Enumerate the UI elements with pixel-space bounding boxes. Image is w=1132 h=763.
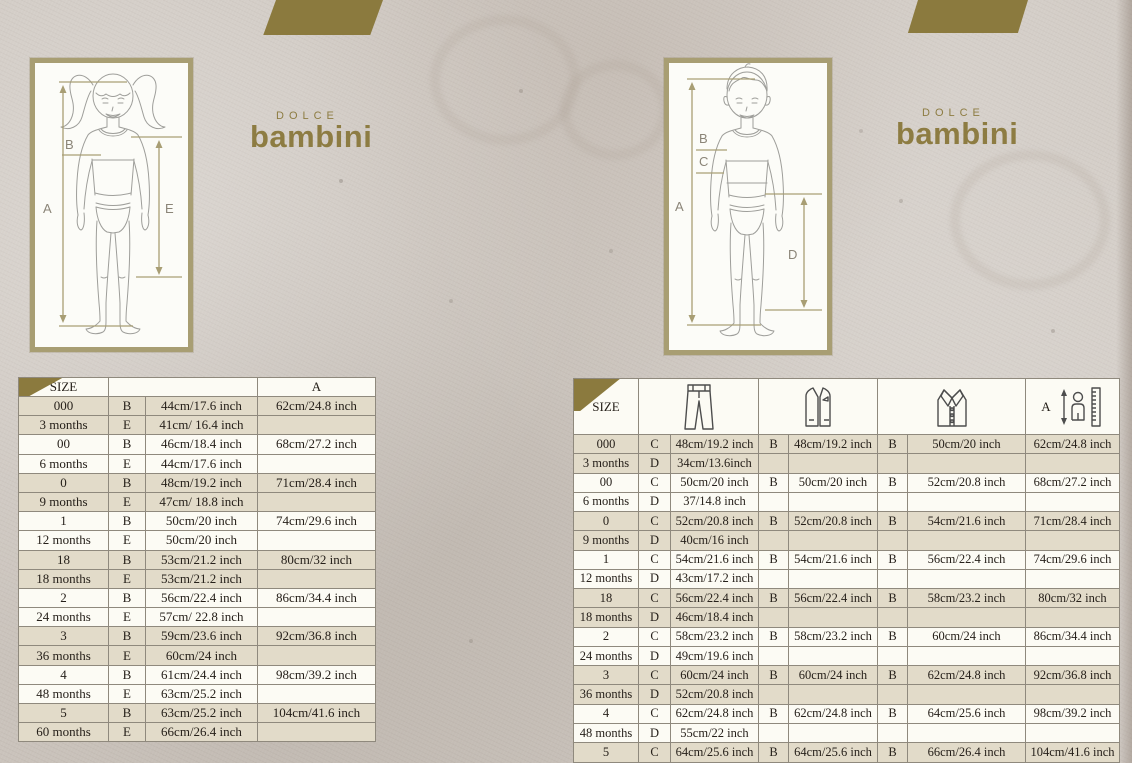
vest-measure-cell [789, 608, 878, 627]
letter-cell: E [109, 723, 146, 742]
table-row: 0C52cm/20.8 inchB52cm/20.8 inchB54cm/21.… [574, 512, 1120, 531]
shirt-measure-cell [908, 569, 1026, 588]
size-cell: 6 months [574, 492, 639, 511]
measure-cell: 53cm/21.2 inch [146, 550, 258, 569]
letter-cell: B [878, 512, 908, 531]
vest-measure-cell: 60cm/24 inch [789, 666, 878, 685]
vest-measure-cell: 48cm/19.2 inch [789, 435, 878, 454]
height-a-cell: 80cm/32 inch [258, 550, 376, 569]
letter-cell: B [878, 627, 908, 646]
size-cell: 00 [19, 435, 109, 454]
letter-cell: B [109, 665, 146, 684]
table-row: 18C56cm/22.4 inchB56cm/22.4 inchB58cm/23… [574, 589, 1120, 608]
table-row: 9 monthsD40cm/16 inch [574, 531, 1120, 550]
vest-measure-cell: 58cm/23.2 inch [789, 627, 878, 646]
size-cell: 3 [19, 627, 109, 646]
height-a-cell [1026, 685, 1120, 704]
size-cell: 4 [574, 704, 639, 723]
size-cell: 1 [19, 512, 109, 531]
measure-cell: 63cm/25.2 inch [146, 684, 258, 703]
height-a-cell [1026, 646, 1120, 665]
boy-sketch: A B C D [669, 63, 827, 350]
letter-cell: E [109, 531, 146, 550]
height-a-cell [258, 531, 376, 550]
size-cell: 0 [574, 512, 639, 531]
height-a-cell: 86cm/34.4 inch [1026, 627, 1120, 646]
letter-cell: D [639, 492, 671, 511]
pants-icon [681, 383, 717, 431]
letter-cell [878, 454, 908, 473]
vest-measure-cell: 62cm/24.8 inch [789, 704, 878, 723]
height-a-cell [258, 684, 376, 703]
letter-cell: E [109, 569, 146, 588]
table-row: 1C54cm/21.6 inchB54cm/21.6 inchB56cm/22.… [574, 550, 1120, 569]
letter-cell: B [759, 473, 789, 492]
letter-cell [878, 685, 908, 704]
damask-ornament [430, 15, 580, 145]
letter-cell: E [109, 454, 146, 473]
table-row: 2C58cm/23.2 inchB58cm/23.2 inchB60cm/24 … [574, 627, 1120, 646]
girl-measure-arrows: A B E [43, 82, 182, 326]
letter-cell: B [759, 589, 789, 608]
plaster-specks [0, 0, 2, 2]
height-a-cell [1026, 454, 1120, 473]
letter-cell: B [759, 512, 789, 531]
letter-cell: C [639, 589, 671, 608]
shirt-measure-cell [908, 492, 1026, 511]
size-cell: 18 [574, 589, 639, 608]
letter-cell: D [639, 569, 671, 588]
table-row: 36 monthsE60cm/24 inch [19, 646, 376, 665]
height-a-header: A [1026, 379, 1120, 435]
table-row: 18B53cm/21.2 inch80cm/32 inch [19, 550, 376, 569]
table-row: 0B48cm/19.2 inch71cm/28.4 inch [19, 473, 376, 492]
height-a-header: A [258, 378, 376, 397]
pants-measure-cell: 49cm/19.6 inch [671, 646, 759, 665]
measure-cell: 48cm/19.2 inch [146, 473, 258, 492]
measure-cell: 44cm/17.6 inch [146, 454, 258, 473]
shirt-icon [931, 386, 973, 428]
girl-sketch: A B E [35, 63, 188, 347]
height-a-cell [1026, 723, 1120, 742]
table-row: 3 monthsD34cm/13.6inch [574, 454, 1120, 473]
measure-cell: 57cm/ 22.8 inch [146, 608, 258, 627]
letter-cell: C [639, 435, 671, 454]
letter-cell [759, 685, 789, 704]
table-row: 00B46cm/18.4 inch68cm/27.2 inch [19, 435, 376, 454]
table-row: 12 monthsE50cm/20 inch [19, 531, 376, 550]
brand-name-bambini: bambini [250, 121, 372, 152]
size-header: SIZE [574, 379, 639, 435]
size-cell: 24 months [574, 646, 639, 665]
measure-cell: 56cm/22.4 inch [146, 588, 258, 607]
pants-measure-cell: 62cm/24.8 inch [671, 704, 759, 723]
damask-ornament [560, 60, 670, 160]
letter-cell: C [639, 512, 671, 531]
letter-cell: C [639, 627, 671, 646]
shirt-measure-cell [908, 646, 1026, 665]
letter-cell: B [109, 512, 146, 531]
letter-cell [878, 492, 908, 511]
size-cell: 2 [574, 627, 639, 646]
measure-label-d: D [788, 247, 797, 262]
letter-cell: B [878, 435, 908, 454]
gold-bar-decoration [263, 0, 383, 35]
letter-cell [878, 723, 908, 742]
size-cell: 3 months [574, 454, 639, 473]
table-row: 5C64cm/25.6 inchB64cm/25.6 inchB66cm/26.… [574, 743, 1120, 762]
letter-cell [759, 646, 789, 665]
height-a-cell [258, 608, 376, 627]
table-row: 4C62cm/24.8 inchB62cm/24.8 inchB64cm/25.… [574, 704, 1120, 723]
blank-header [109, 378, 258, 397]
vest-measure-cell [789, 492, 878, 511]
letter-cell [878, 608, 908, 627]
measure-cell: 61cm/24.4 inch [146, 665, 258, 684]
height-a-cell: 71cm/28.4 inch [258, 473, 376, 492]
pants-measure-cell: 52cm/20.8 inch [671, 512, 759, 531]
height-a-cell: 98cm/39.2 inch [258, 665, 376, 684]
letter-cell: B [878, 589, 908, 608]
pants-measure-cell: 48cm/19.2 inch [671, 435, 759, 454]
pants-measure-cell: 52cm/20.8 inch [671, 685, 759, 704]
letter-cell [759, 569, 789, 588]
pants-measure-cell: 43cm/17.2 inch [671, 569, 759, 588]
table-row: 4B61cm/24.4 inch98cm/39.2 inch [19, 665, 376, 684]
size-cell: 5 [574, 743, 639, 762]
table-row: 60 monthsE66cm/26.4 inch [19, 723, 376, 742]
pants-measure-cell: 56cm/22.4 inch [671, 589, 759, 608]
table-row: 12 monthsD43cm/17.2 inch [574, 569, 1120, 588]
letter-cell: B [878, 666, 908, 685]
pants-measure-cell: 34cm/13.6inch [671, 454, 759, 473]
pants-measure-cell: 58cm/23.2 inch [671, 627, 759, 646]
letter-cell: B [109, 627, 146, 646]
letter-cell: D [639, 608, 671, 627]
measure-cell: 46cm/18.4 inch [146, 435, 258, 454]
table-row: 6 monthsD37/14.8 inch [574, 492, 1120, 511]
vest-icon [800, 386, 836, 428]
letter-cell [759, 492, 789, 511]
size-cell: 9 months [574, 531, 639, 550]
shirt-measure-cell [908, 531, 1026, 550]
vest-measure-cell: 54cm/21.6 inch [789, 550, 878, 569]
measure-label-e: E [165, 201, 174, 216]
gold-bar-decoration [908, 0, 1028, 33]
vest-measure-cell [789, 685, 878, 704]
vest-measure-cell: 56cm/22.4 inch [789, 589, 878, 608]
letter-cell: E [109, 646, 146, 665]
table-row: 3B59cm/23.6 inch92cm/36.8 inch [19, 627, 376, 646]
letter-cell: D [639, 646, 671, 665]
letter-cell: C [639, 743, 671, 762]
pants-measure-cell: 50cm/20 inch [671, 473, 759, 492]
size-cell: 18 [19, 550, 109, 569]
shirt-measure-cell: 66cm/26.4 inch [908, 743, 1026, 762]
table-row: 9 monthsE47cm/ 18.8 inch [19, 492, 376, 511]
measure-cell: 59cm/23.6 inch [146, 627, 258, 646]
letter-cell: B [759, 627, 789, 646]
girl-measurement-figure: A B E [30, 58, 193, 352]
height-a-cell [258, 569, 376, 588]
letter-cell: D [639, 454, 671, 473]
size-cell: 12 months [19, 531, 109, 550]
measure-cell: 44cm/17.6 inch [146, 397, 258, 416]
shirt-measure-cell: 54cm/21.6 inch [908, 512, 1026, 531]
height-a-cell: 98cm/39.2 inch [1026, 704, 1120, 723]
table-row: 24 monthsD49cm/19.6 inch [574, 646, 1120, 665]
height-a-cell: 92cm/36.8 inch [258, 627, 376, 646]
letter-cell: B [109, 435, 146, 454]
size-cell: 18 months [19, 569, 109, 588]
letter-cell [759, 531, 789, 550]
size-header: SIZE [19, 378, 109, 397]
measure-label-a: A [675, 199, 684, 214]
height-a-cell: 74cm/29.6 inch [1026, 550, 1120, 569]
size-cell: 48 months [19, 684, 109, 703]
shirt-measure-cell: 64cm/25.6 inch [908, 704, 1026, 723]
pants-measure-cell: 46cm/18.4 inch [671, 608, 759, 627]
table-row: 6 monthsE44cm/17.6 inch [19, 454, 376, 473]
pants-measure-cell: 55cm/22 inch [671, 723, 759, 742]
shirt-measure-cell [908, 608, 1026, 627]
size-cell: 2 [19, 588, 109, 607]
shirt-measure-cell: 52cm/20.8 inch [908, 473, 1026, 492]
table-row: 5B63cm/25.2 inch104cm/41.6 inch [19, 704, 376, 723]
measure-label-a: A [43, 201, 52, 216]
height-ruler-icon [1056, 386, 1104, 428]
size-chart-page: A B E DOLCE bambini [0, 0, 1132, 763]
letter-cell: D [639, 685, 671, 704]
brand-logo: DOLCE bambini [896, 107, 1018, 149]
letter-cell: B [878, 704, 908, 723]
height-a-cell [258, 723, 376, 742]
size-header-label: SIZE [592, 399, 619, 414]
letter-cell: E [109, 492, 146, 511]
letter-cell [878, 531, 908, 550]
letter-cell: B [759, 666, 789, 685]
shirt-measure-cell: 58cm/23.2 inch [908, 589, 1026, 608]
measure-cell: 50cm/20 inch [146, 531, 258, 550]
boy-measurement-figure: A B C D [664, 58, 832, 355]
letter-cell: B [759, 743, 789, 762]
letter-cell: B [109, 397, 146, 416]
vest-column-header [759, 379, 878, 435]
size-cell: 3 months [19, 416, 109, 435]
shirt-measure-cell: 62cm/24.8 inch [908, 666, 1026, 685]
size-cell: 18 months [574, 608, 639, 627]
vest-measure-cell [789, 569, 878, 588]
letter-cell: E [109, 684, 146, 703]
table-row: 48 monthsE63cm/25.2 inch [19, 684, 376, 703]
letter-cell: E [109, 608, 146, 627]
table-row: 18 monthsD46cm/18.4 inch [574, 608, 1120, 627]
vest-measure-cell [789, 531, 878, 550]
measure-cell: 60cm/24 inch [146, 646, 258, 665]
letter-cell: D [639, 531, 671, 550]
damask-ornament [950, 150, 1110, 290]
size-cell: 4 [19, 665, 109, 684]
letter-cell: C [639, 666, 671, 685]
height-a-cell: 92cm/36.8 inch [1026, 666, 1120, 685]
height-a-cell: 104cm/41.6 inch [258, 704, 376, 723]
shirt-measure-cell: 60cm/24 inch [908, 627, 1026, 646]
shirt-measure-cell [908, 454, 1026, 473]
letter-cell [759, 723, 789, 742]
letter-cell: B [759, 550, 789, 569]
size-cell: 3 [574, 666, 639, 685]
vest-measure-cell [789, 723, 878, 742]
vest-measure-cell: 50cm/20 inch [789, 473, 878, 492]
letter-cell: B [878, 743, 908, 762]
measure-cell: 53cm/21.2 inch [146, 569, 258, 588]
pants-measure-cell: 60cm/24 inch [671, 666, 759, 685]
letter-cell: B [878, 550, 908, 569]
height-a-cell [1026, 608, 1120, 627]
shirt-measure-cell [908, 723, 1026, 742]
height-a-cell [258, 646, 376, 665]
pants-measure-cell: 40cm/16 inch [671, 531, 759, 550]
height-a-cell: 62cm/24.8 inch [258, 397, 376, 416]
height-a-cell: 86cm/34.4 inch [258, 588, 376, 607]
table-row: 000C48cm/19.2 inchB48cm/19.2 inchB50cm/2… [574, 435, 1120, 454]
letter-cell: B [109, 588, 146, 607]
letter-cell [878, 569, 908, 588]
letter-cell: D [639, 723, 671, 742]
table-header-row: SIZE A [19, 378, 376, 397]
letter-cell: B [109, 473, 146, 492]
height-a-cell [1026, 569, 1120, 588]
table-row: 24 monthsE57cm/ 22.8 inch [19, 608, 376, 627]
pants-column-header [639, 379, 759, 435]
size-cell: 1 [574, 550, 639, 569]
height-a-label: A [1041, 399, 1050, 415]
height-a-cell [258, 454, 376, 473]
shirt-column-header [878, 379, 1026, 435]
measure-cell: 66cm/26.4 inch [146, 723, 258, 742]
boys-table-body: 000C48cm/19.2 inchB48cm/19.2 inchB50cm/2… [574, 435, 1120, 763]
letter-cell: B [759, 435, 789, 454]
height-a-cell [1026, 531, 1120, 550]
size-cell: 5 [19, 704, 109, 723]
measure-label-b: B [699, 131, 708, 146]
measure-cell: 47cm/ 18.8 inch [146, 492, 258, 511]
vest-measure-cell [789, 454, 878, 473]
letter-cell: C [639, 473, 671, 492]
size-cell: 00 [574, 473, 639, 492]
letter-cell: C [639, 550, 671, 569]
pants-measure-cell: 54cm/21.6 inch [671, 550, 759, 569]
table-row: 2B56cm/22.4 inch86cm/34.4 inch [19, 588, 376, 607]
boys-size-table: SIZE [573, 378, 1120, 763]
table-row: 3 monthsE41cm/ 16.4 inch [19, 416, 376, 435]
letter-cell [759, 454, 789, 473]
height-a-cell: 62cm/24.8 inch [1026, 435, 1120, 454]
size-cell: 6 months [19, 454, 109, 473]
vest-measure-cell: 64cm/25.6 inch [789, 743, 878, 762]
height-a-cell: 104cm/41.6 inch [1026, 743, 1120, 762]
boy-measure-arrows: A B C D [675, 79, 822, 325]
girls-table-body: 000B44cm/17.6 inch62cm/24.8 inch3 months… [19, 397, 376, 742]
brand-name-bambini: bambini [896, 118, 1018, 149]
letter-cell: C [639, 704, 671, 723]
vest-measure-cell [789, 646, 878, 665]
letter-cell: B [109, 550, 146, 569]
letter-cell: B [878, 473, 908, 492]
table-row: 36 monthsD52cm/20.8 inch [574, 685, 1120, 704]
height-a-cell [258, 492, 376, 511]
size-cell: 36 months [19, 646, 109, 665]
brand-logo: DOLCE bambini [250, 110, 372, 152]
vest-measure-cell: 52cm/20.8 inch [789, 512, 878, 531]
table-row: 18 monthsE53cm/21.2 inch [19, 569, 376, 588]
height-a-cell [1026, 492, 1120, 511]
height-a-cell: 68cm/27.2 inch [1026, 473, 1120, 492]
size-cell: 9 months [19, 492, 109, 511]
letter-cell: B [109, 704, 146, 723]
size-cell: 000 [574, 435, 639, 454]
measure-label-c: C [699, 154, 708, 169]
shirt-measure-cell: 56cm/22.4 inch [908, 550, 1026, 569]
size-cell: 000 [19, 397, 109, 416]
measure-cell: 63cm/25.2 inch [146, 704, 258, 723]
size-cell: 48 months [574, 723, 639, 742]
size-cell: 36 months [574, 685, 639, 704]
height-a-cell [258, 416, 376, 435]
pants-measure-cell: 64cm/25.6 inch [671, 743, 759, 762]
measure-cell: 41cm/ 16.4 inch [146, 416, 258, 435]
table-row: 00C50cm/20 inchB50cm/20 inchB52cm/20.8 i… [574, 473, 1120, 492]
size-cell: 24 months [19, 608, 109, 627]
size-cell: 12 months [574, 569, 639, 588]
letter-cell [878, 646, 908, 665]
table-header-row: SIZE [574, 379, 1120, 435]
measure-label-b: B [65, 137, 74, 152]
table-row: 3C60cm/24 inchB60cm/24 inchB62cm/24.8 in… [574, 666, 1120, 685]
height-a-cell: 68cm/27.2 inch [258, 435, 376, 454]
table-row: 1B50cm/20 inch74cm/29.6 inch [19, 512, 376, 531]
table-row: 000B44cm/17.6 inch62cm/24.8 inch [19, 397, 376, 416]
height-a-cell: 74cm/29.6 inch [258, 512, 376, 531]
letter-cell: E [109, 416, 146, 435]
letter-cell: B [759, 704, 789, 723]
table-row: 48 monthsD55cm/22 inch [574, 723, 1120, 742]
size-cell: 60 months [19, 723, 109, 742]
letter-cell [759, 608, 789, 627]
height-a-cell: 80cm/32 inch [1026, 589, 1120, 608]
girls-size-table: SIZE A 000B44cm/17.6 inch62cm/24.8 inch3… [18, 377, 376, 742]
pants-measure-cell: 37/14.8 inch [671, 492, 759, 511]
height-a-cell: 71cm/28.4 inch [1026, 512, 1120, 531]
measure-cell: 50cm/20 inch [146, 512, 258, 531]
shirt-measure-cell [908, 685, 1026, 704]
shirt-measure-cell: 50cm/20 inch [908, 435, 1026, 454]
size-cell: 0 [19, 473, 109, 492]
